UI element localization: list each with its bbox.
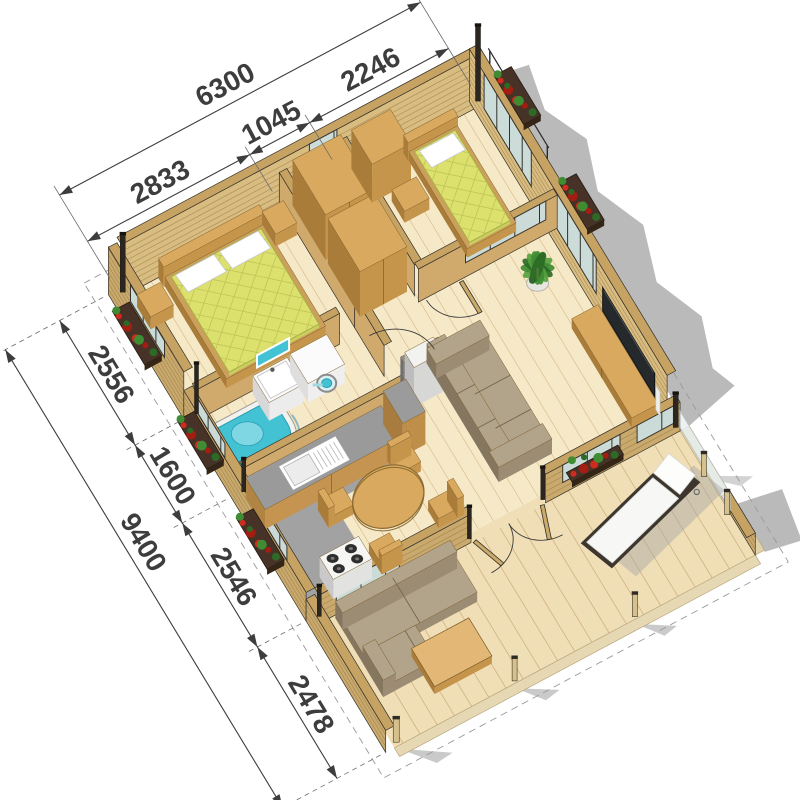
flower (593, 453, 603, 463)
flower (142, 342, 148, 348)
flower (611, 451, 619, 459)
post-cap (393, 716, 400, 719)
post (467, 508, 471, 539)
dimension-arrow (236, 155, 250, 165)
flower (562, 185, 568, 191)
post (393, 719, 399, 742)
post (632, 594, 637, 616)
dimension-arrow (172, 510, 182, 523)
flower (494, 70, 502, 78)
dimension-label: 9400 (114, 508, 173, 577)
post (673, 394, 678, 427)
floor-plan-root: 283310452246630025561600254624789400 (0, 0, 800, 800)
flower (581, 454, 587, 460)
dimension-label: 6300 (190, 56, 260, 113)
flower (124, 320, 130, 326)
stove-burner (355, 557, 359, 560)
post-cap (724, 489, 730, 492)
dining-chair-back (329, 505, 335, 527)
post (512, 659, 517, 681)
post-cap (467, 505, 472, 508)
post-cap (673, 391, 679, 394)
flower (265, 547, 271, 553)
dimension-arrow (125, 432, 135, 445)
dimension-arrow (327, 765, 337, 778)
flower (603, 453, 609, 459)
dimension-label: 1600 (143, 441, 202, 510)
floor-plan-canvas: 283310452246630025561600254624789400 (0, 0, 800, 800)
post-cap (120, 232, 126, 235)
dimension-arrow (310, 113, 324, 123)
flower (257, 540, 267, 550)
flower (240, 520, 246, 526)
post-cap (511, 656, 517, 659)
dimension-arrow (182, 523, 192, 536)
dimension-arrow (407, 2, 421, 12)
post (242, 460, 246, 492)
washer-door-glass (322, 379, 332, 388)
post (725, 492, 730, 515)
stove-burner (349, 547, 353, 550)
dimension-arrow (60, 321, 70, 334)
flower (177, 415, 185, 423)
flower (149, 348, 157, 356)
post (702, 454, 707, 477)
flower (112, 307, 120, 315)
post-cap (632, 591, 638, 594)
flower (522, 103, 528, 109)
dimension-label: 2556 (82, 340, 141, 409)
flower (134, 335, 144, 345)
extension-line (0, 297, 103, 355)
faucet (270, 367, 274, 371)
extension-line (272, 755, 381, 800)
dimension-arrow (272, 794, 282, 800)
stove-burner (331, 557, 335, 560)
post-cap (540, 465, 545, 468)
dimension-arrow (5, 350, 15, 363)
flower (212, 453, 220, 461)
dimension-label: 2478 (282, 669, 341, 738)
dimension-label: 2546 (205, 542, 264, 611)
post (317, 587, 321, 617)
post-cap (475, 23, 481, 26)
post (541, 468, 545, 499)
dining-chair-back (458, 496, 464, 518)
extension-line (54, 186, 110, 278)
flower (579, 464, 589, 474)
flower (236, 513, 244, 521)
shower-seat (231, 422, 263, 446)
flower (247, 526, 253, 532)
post-cap (317, 584, 322, 587)
post-cap (194, 361, 199, 364)
flower (498, 78, 504, 84)
flower (568, 456, 576, 464)
dimension-arrow (435, 49, 449, 59)
flower (529, 108, 537, 116)
flower (569, 189, 575, 195)
post-cap (241, 457, 246, 460)
stove-burner (337, 567, 341, 570)
flower (205, 448, 211, 454)
post (476, 26, 481, 101)
flower (504, 83, 510, 89)
flower (181, 422, 187, 428)
flower (272, 553, 280, 561)
post (120, 235, 125, 292)
dimension-arrow (88, 231, 102, 241)
dimension-arrow (257, 647, 267, 660)
flower (558, 177, 566, 185)
post (195, 364, 199, 414)
post-cap (701, 451, 707, 454)
flower (187, 428, 193, 434)
flower (592, 213, 600, 221)
dimension-arrow (247, 634, 257, 647)
dimension-arrow (60, 185, 74, 195)
washer-panel (313, 383, 323, 386)
flower (571, 471, 577, 477)
flower (586, 208, 592, 214)
